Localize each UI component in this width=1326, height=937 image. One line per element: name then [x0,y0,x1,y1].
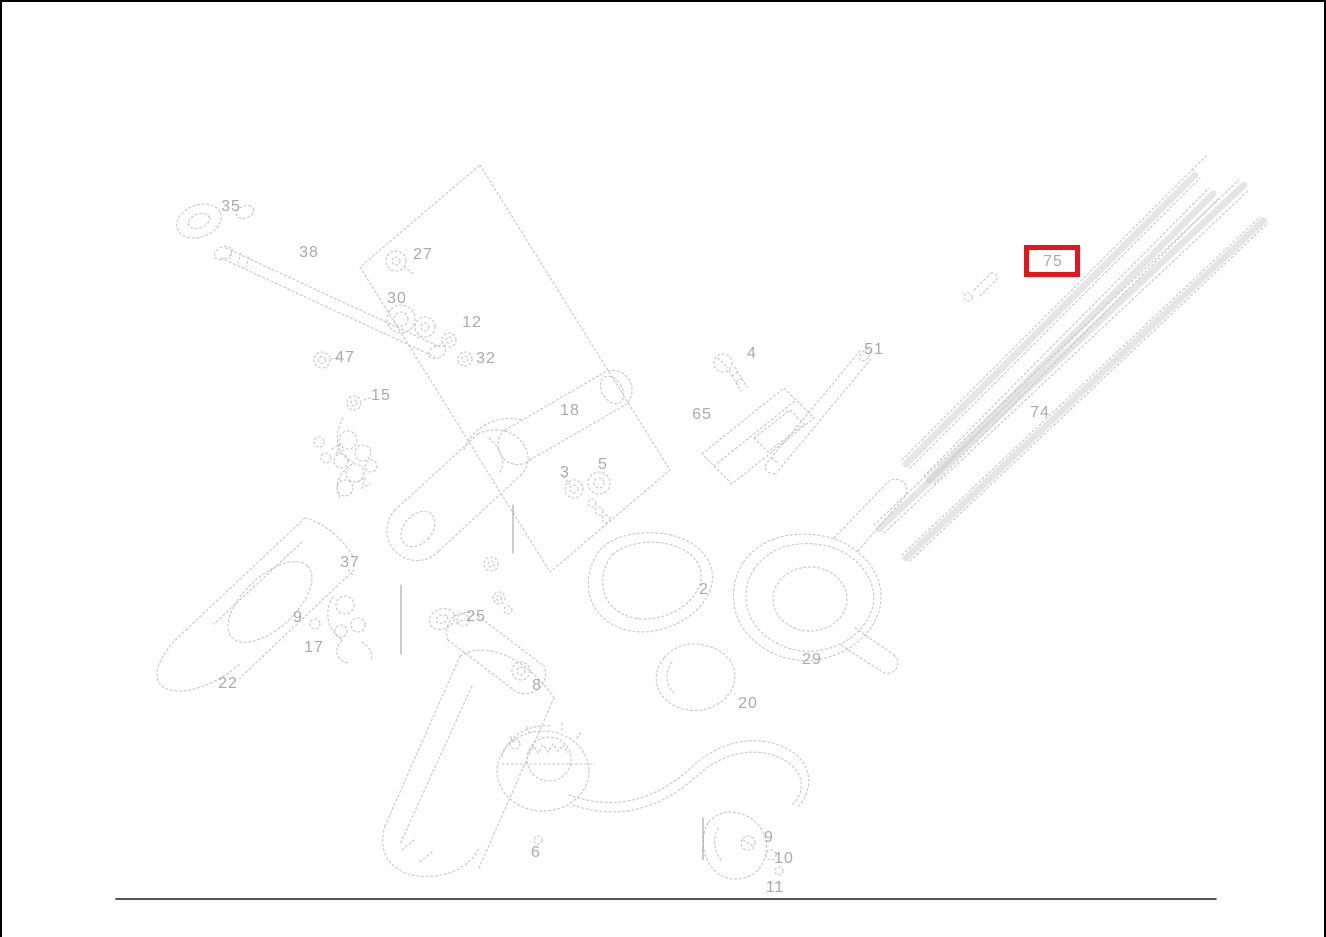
part-label-35[interactable]: 35 [221,198,241,216]
part-label-9a[interactable]: 9 [293,609,303,627]
part-label-3[interactable]: 3 [560,464,570,482]
part-label-29[interactable]: 29 [802,651,822,669]
part-label-37[interactable]: 37 [340,554,360,572]
part-label-5[interactable]: 5 [598,456,608,474]
part-label-51[interactable]: 51 [864,341,884,359]
part-label-47[interactable]: 47 [335,349,355,367]
part-label-8[interactable]: 8 [532,677,542,695]
part-label-15[interactable]: 15 [371,387,391,405]
part-label-74[interactable]: 74 [1030,404,1050,422]
part-label-2[interactable]: 2 [699,581,709,599]
part-label-25[interactable]: 25 [466,608,486,626]
part-label-38[interactable]: 38 [299,244,319,262]
part-label-20[interactable]: 20 [738,695,758,713]
parts-diagram-page: 3538273012324715183565451757422920379172… [0,0,1326,937]
part-label-30[interactable]: 30 [387,290,407,308]
part-label-22[interactable]: 22 [218,675,238,693]
part-label-11[interactable]: 11 [766,879,785,897]
part-label-27[interactable]: 27 [413,246,433,264]
part-label-18[interactable]: 18 [560,402,580,420]
part-label-17[interactable]: 17 [304,639,324,657]
part-label-65[interactable]: 65 [692,406,712,424]
part-label-9b[interactable]: 9 [764,829,774,847]
part-label-75[interactable]: 75 [1043,253,1063,271]
part-label-12[interactable]: 12 [462,314,482,332]
part-label-6[interactable]: 6 [531,844,541,862]
part-label-32[interactable]: 32 [476,350,496,368]
labels-layer: 3538273012324715183565451757422920379172… [2,2,1324,937]
part-label-4[interactable]: 4 [747,345,757,363]
part-label-10[interactable]: 10 [774,850,794,868]
